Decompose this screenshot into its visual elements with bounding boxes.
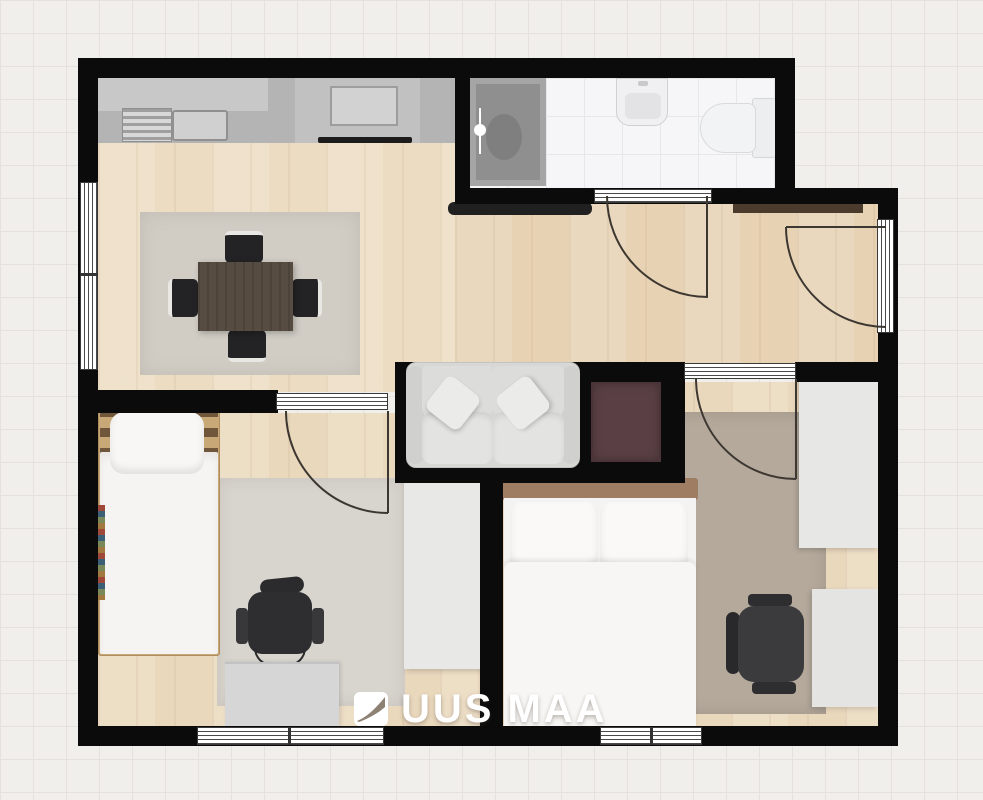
toilet-bowl <box>700 103 756 153</box>
window-bedroom-2-mullion <box>650 727 653 745</box>
entry-door-threshold <box>877 219 894 333</box>
sofa <box>406 362 580 468</box>
faucet-icon <box>638 81 648 86</box>
chair-seat <box>248 592 312 654</box>
wardrobe-bedroom-2 <box>799 364 879 548</box>
dining-chair-left <box>168 279 198 317</box>
maroon-panel <box>591 382 661 462</box>
wall-bedroom-2-top <box>795 362 878 382</box>
chair-armrest-right <box>312 608 324 644</box>
upper-cabinets <box>98 78 268 111</box>
washbasin <box>616 78 668 126</box>
window-bedroom-1-mullion <box>288 727 291 745</box>
double-bed-pillow-left <box>510 502 598 570</box>
bedroom-1-door-threshold <box>276 393 388 410</box>
office-chair-bedroom-1 <box>236 576 324 668</box>
uusmaa-logo-icon <box>354 692 388 726</box>
wardrobe-bedroom-1 <box>404 477 482 669</box>
chair-armrest-top <box>748 594 792 606</box>
bathroom-door-threshold <box>594 189 712 203</box>
desk-bedroom-1 <box>225 662 339 726</box>
wall-bathroom-left <box>455 58 470 204</box>
double-bed-pillow-right <box>600 502 688 570</box>
bedside-books <box>98 505 105 600</box>
bedroom-2-door-threshold <box>684 363 796 379</box>
watermark-word-2: MAA <box>507 692 607 726</box>
sink-basin <box>172 110 228 141</box>
sofa-armrest-right <box>562 366 580 464</box>
sink-drainer <box>122 108 172 142</box>
wall-top <box>80 58 795 78</box>
chair-armrest-left <box>236 608 248 644</box>
dining-chair-right <box>292 279 322 317</box>
single-bed-mattress <box>100 452 218 654</box>
watermark-word-1: UUS <box>401 692 494 726</box>
window-left-mullion <box>80 273 98 276</box>
dining-table <box>198 262 293 331</box>
single-bed-pillow <box>110 412 204 474</box>
floor-hallway <box>455 203 878 365</box>
wall-bedroom-1-top <box>78 390 278 413</box>
wall-bathroom-right <box>775 58 795 204</box>
dining-chair-top <box>225 231 263 263</box>
watermark: UUS MAA <box>354 692 608 726</box>
chair-seat <box>738 606 804 682</box>
floorplan-canvas: UUS MAA <box>0 0 983 800</box>
desk-bedroom-2 <box>812 589 878 707</box>
washbasin-bowl <box>625 93 661 119</box>
shower <box>470 78 546 186</box>
shower-drain-icon <box>486 114 522 160</box>
chair-armrest-bottom <box>752 682 796 694</box>
cooktop <box>330 86 398 126</box>
shower-rail-icon <box>479 108 481 154</box>
oven-handle <box>318 137 412 143</box>
dining-chair-bottom <box>228 330 266 362</box>
window-left <box>80 182 98 370</box>
office-chair-bedroom-2 <box>720 594 812 694</box>
